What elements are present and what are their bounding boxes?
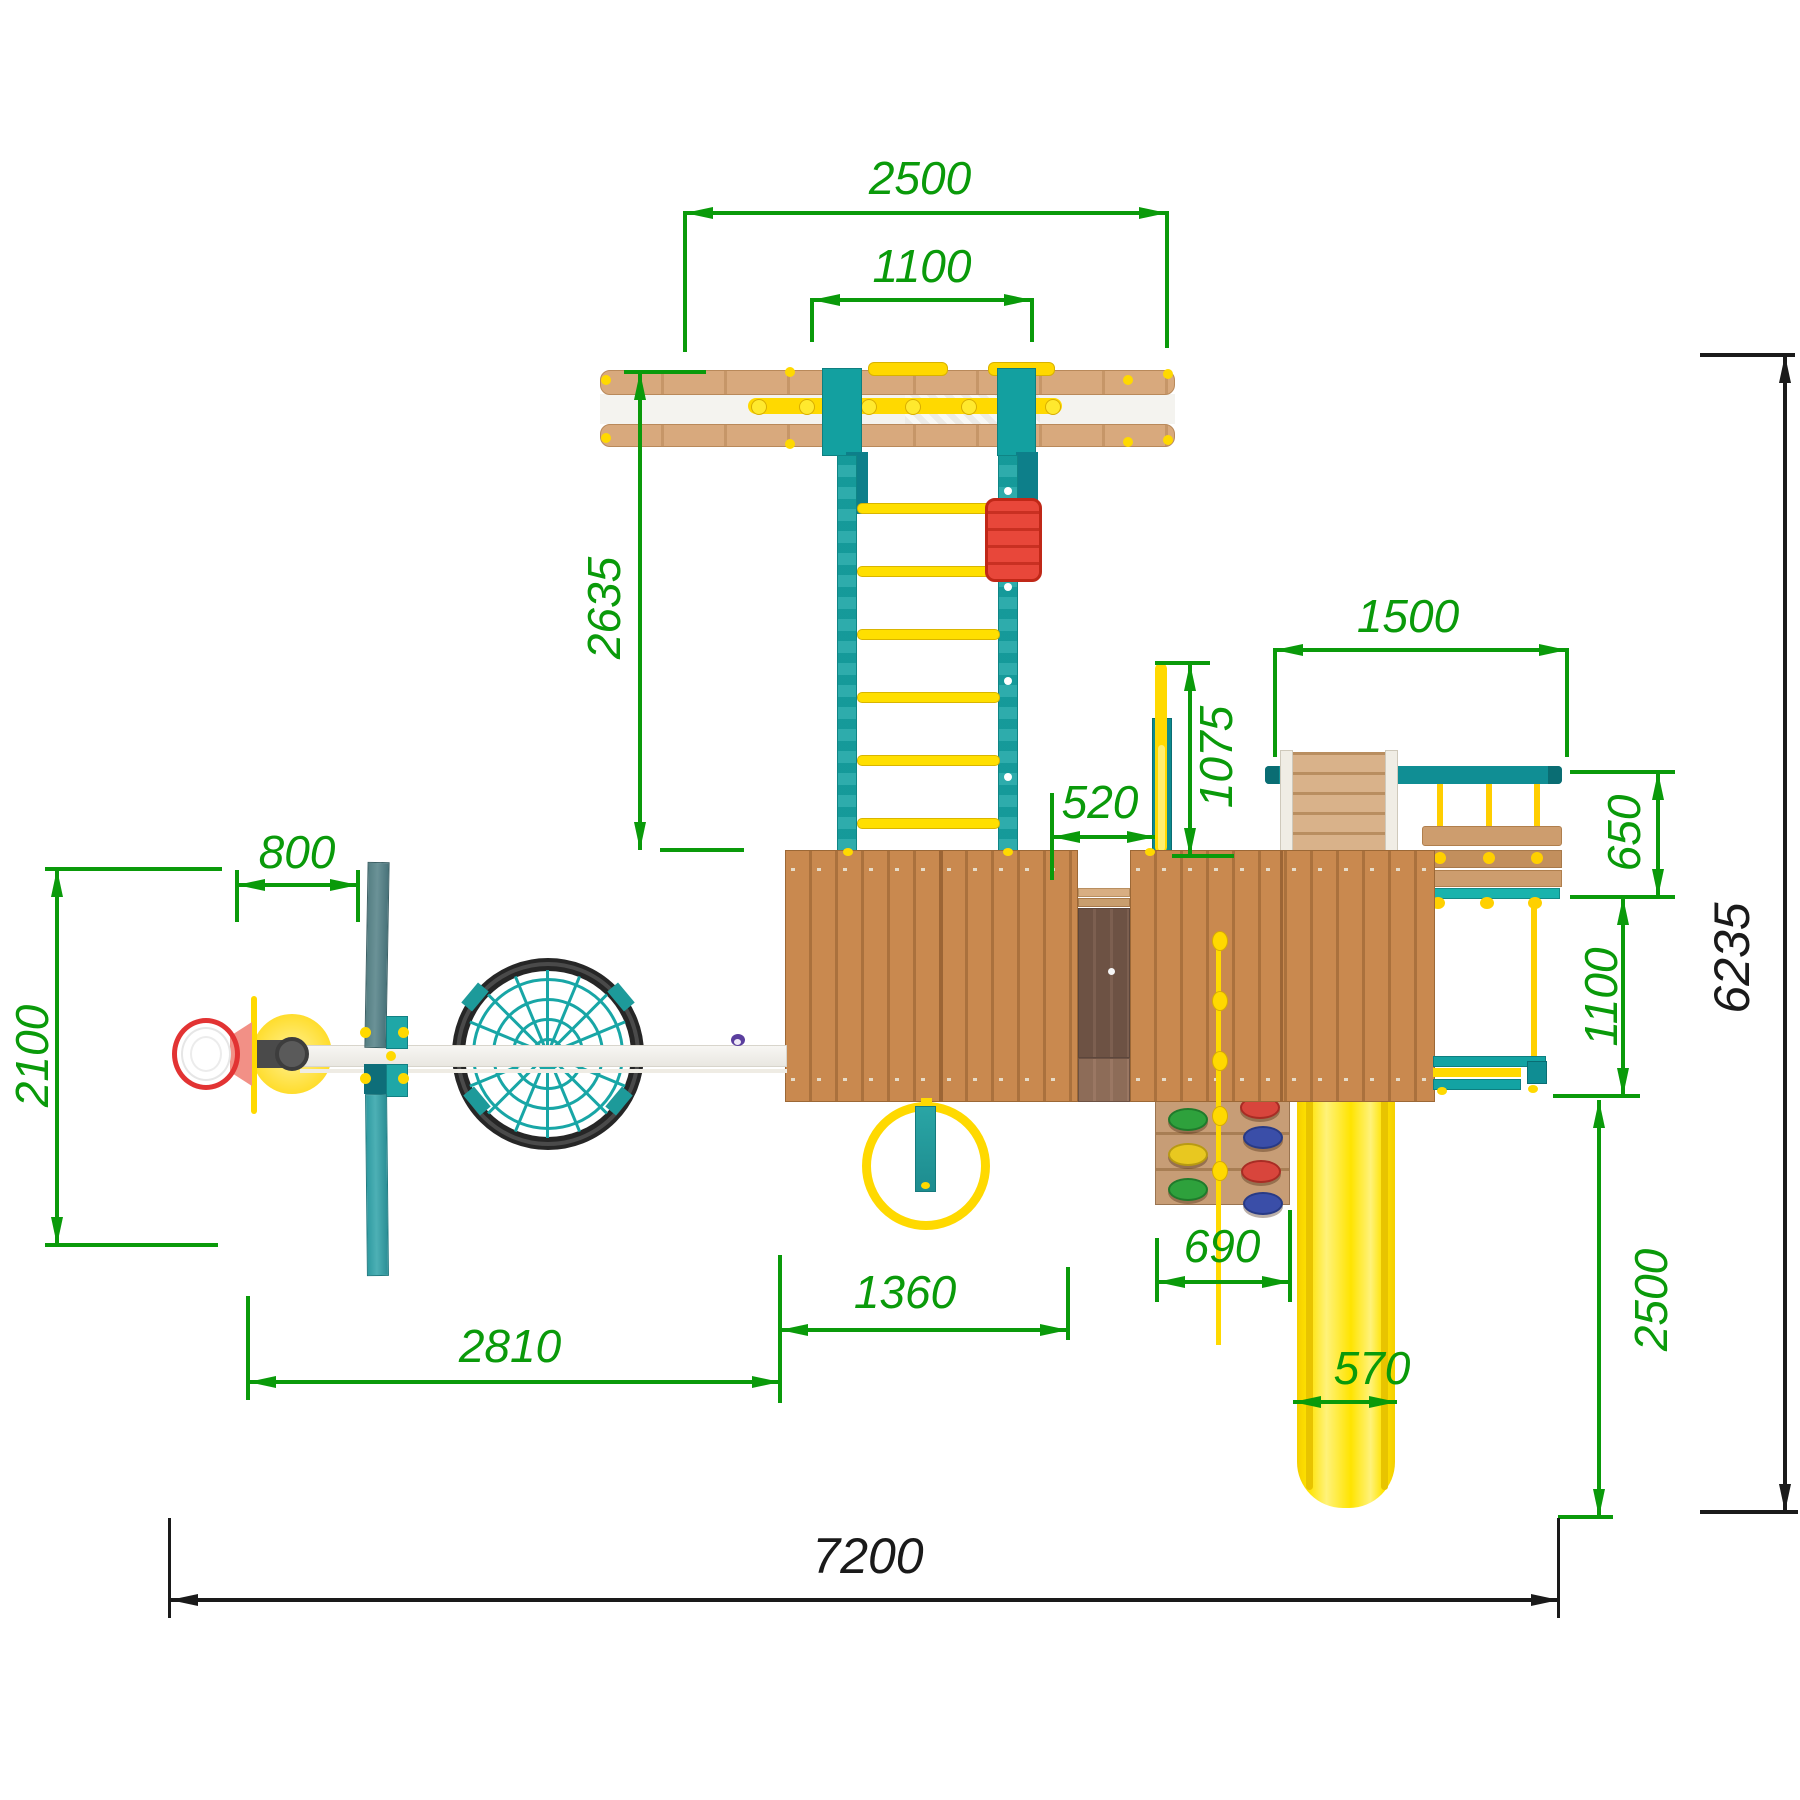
left-tower-roof xyxy=(785,850,1078,1102)
a-frame-board-lower xyxy=(365,1094,389,1276)
bolt-dot xyxy=(1004,773,1012,781)
bench-swing-plank xyxy=(1422,826,1562,846)
basketball-pole xyxy=(275,1037,309,1071)
climbing-hold-green xyxy=(1168,1178,1208,1201)
ladder-rung xyxy=(857,755,1000,766)
screw-dot xyxy=(1003,848,1013,856)
bolt-dot-yellow xyxy=(360,1073,371,1084)
ladder-rung xyxy=(857,629,1000,640)
rope-knot xyxy=(1212,991,1228,1011)
slide-edge xyxy=(1306,1098,1313,1490)
bolt-dot-yellow xyxy=(360,1027,371,1038)
pole-rod-highlight xyxy=(1158,745,1165,851)
right-roof-nail-row xyxy=(1136,1078,1429,1081)
crossbeam-post xyxy=(822,368,862,456)
swing-seat-yellow xyxy=(1433,1068,1521,1077)
dim-label-650: 650 xyxy=(1601,795,1647,872)
screw-dot xyxy=(1437,1087,1447,1095)
bolt-dot-yellow xyxy=(398,1073,409,1084)
rope-through-dot xyxy=(1483,852,1495,864)
left-roof-nail-row xyxy=(791,868,1072,871)
dim-label-1100-right: 1100 xyxy=(1578,948,1624,1047)
ladder-rung xyxy=(857,818,1000,829)
bolt-dot xyxy=(1004,583,1012,591)
access-ramp-steps xyxy=(1293,752,1385,852)
screw-dot xyxy=(1145,848,1155,856)
crossbeam-post xyxy=(997,368,1036,456)
screw-dot xyxy=(601,433,611,443)
swing-rope xyxy=(1486,784,1492,830)
swing-crossbeam-cap xyxy=(1548,766,1562,784)
dim-label-2500-right: 2500 xyxy=(1628,1249,1674,1351)
bolt-dot xyxy=(1108,968,1115,975)
left-roof-nail-row xyxy=(791,1078,1072,1081)
rope-knot-dot xyxy=(1480,897,1494,909)
dim-label-6235: 6235 xyxy=(1707,902,1757,1013)
dim-label-2810: 2810 xyxy=(459,1323,561,1369)
screw-dot xyxy=(386,1051,396,1061)
rope-knot xyxy=(1212,1051,1228,1071)
bridge-slat xyxy=(1078,898,1130,907)
screw-dot xyxy=(601,375,611,385)
swing-rope xyxy=(1534,784,1540,830)
monkey-bar-rung-cap xyxy=(751,399,767,415)
screw-dot xyxy=(1163,369,1173,379)
ladder-rung xyxy=(857,692,1000,703)
dim-label-1360: 1360 xyxy=(854,1269,956,1315)
bench-swing-plank xyxy=(1428,870,1562,887)
rope-knot xyxy=(1212,1161,1228,1181)
rope-through-dot xyxy=(1531,852,1543,864)
rope-knot xyxy=(1212,1106,1228,1126)
climbing-hold-blue xyxy=(1243,1192,1283,1215)
bench-swing-board xyxy=(1433,888,1560,899)
bridge-slat xyxy=(1078,888,1130,897)
screw-dot xyxy=(785,367,795,377)
swing-seat-block xyxy=(1527,1061,1547,1084)
ladder-rung xyxy=(857,566,1000,577)
drawing-canvas: 2500 1100 2635 800 2100 xyxy=(0,0,1800,1800)
slide-edge xyxy=(1381,1098,1388,1490)
screw-dot xyxy=(1163,435,1173,445)
rope-knot xyxy=(1212,931,1228,951)
swing-rope xyxy=(1437,784,1443,830)
dim-label-690: 690 xyxy=(1184,1223,1261,1269)
dim-label-1500: 1500 xyxy=(1357,593,1459,639)
ladder-rung xyxy=(857,503,1000,514)
screw-dot xyxy=(921,1182,930,1189)
dim-label-520: 520 xyxy=(1062,779,1139,825)
bridge-deck-light xyxy=(1078,1058,1130,1102)
access-ramp-rail xyxy=(1280,750,1293,852)
dim-label-570: 570 xyxy=(1334,1345,1411,1391)
monkey-bar-rung-cap xyxy=(861,399,877,415)
climbing-hold-red xyxy=(1241,1160,1281,1183)
access-ramp-rail xyxy=(1385,750,1398,852)
bird-belly xyxy=(734,1039,741,1045)
monkey-bar-rung-cap xyxy=(905,399,921,415)
dim-label-7200: 7200 xyxy=(812,1531,923,1581)
monkey-bar-rung-cap xyxy=(799,399,815,415)
ladder-rail-left xyxy=(837,455,857,852)
right-roof-seam xyxy=(1280,850,1283,1102)
climbing-hold-blue xyxy=(1243,1126,1283,1149)
screw-dot xyxy=(1123,437,1133,447)
monkey-bar-handle xyxy=(868,362,948,376)
screw-dot xyxy=(1123,375,1133,385)
rope-through-dot xyxy=(1434,852,1446,864)
screw-dot xyxy=(843,848,853,856)
bolt-dot xyxy=(1004,487,1012,495)
ring-swing-board xyxy=(915,1106,936,1192)
dim-label-1100-top: 1100 xyxy=(873,243,972,289)
dim-label-2635: 2635 xyxy=(581,557,627,659)
bolt-dot-yellow xyxy=(398,1027,409,1038)
monkey-bar-rung-cap xyxy=(1045,399,1061,415)
basketball-net xyxy=(190,1036,222,1072)
climbing-hold-yellow xyxy=(1168,1143,1208,1166)
climbing-hold-green xyxy=(1168,1108,1208,1131)
right-roof-nail-row xyxy=(1136,868,1429,871)
swing-crossbeam-cap xyxy=(1265,766,1279,784)
dim-label-800: 800 xyxy=(259,829,336,875)
screw-dot xyxy=(1528,1085,1538,1093)
red-grip xyxy=(985,498,1042,582)
left-roof-seam xyxy=(939,850,943,1102)
swing-rope-long xyxy=(1531,906,1537,1058)
bolt-dot xyxy=(1004,677,1012,685)
monkey-bar-rung-cap xyxy=(961,399,977,415)
crossbeam-bottom-rail xyxy=(600,424,1175,447)
bridge-deck xyxy=(1078,908,1130,1058)
dim-label-1075: 1075 xyxy=(1193,706,1239,808)
dim-label-2100: 2100 xyxy=(9,1005,55,1107)
dim-label-2500-top: 2500 xyxy=(869,155,971,201)
screw-dot xyxy=(785,439,795,449)
